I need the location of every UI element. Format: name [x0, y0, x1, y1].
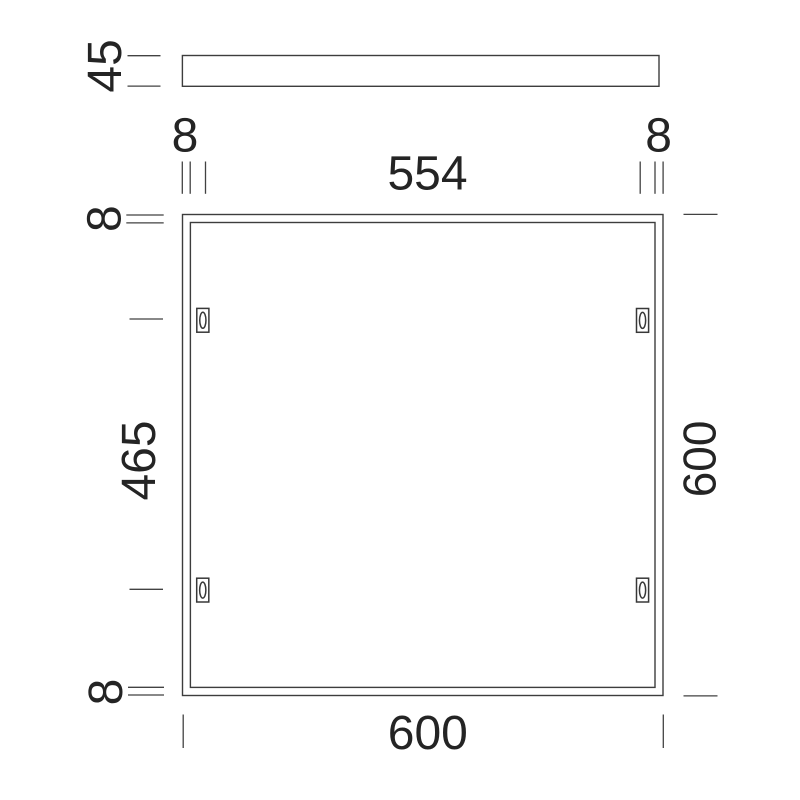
svg-text:45: 45 [79, 39, 132, 92]
svg-text:8: 8 [80, 679, 133, 706]
svg-text:554: 554 [387, 147, 467, 200]
svg-text:465: 465 [113, 420, 166, 500]
svg-text:600: 600 [388, 707, 468, 760]
svg-text:600: 600 [673, 421, 725, 498]
svg-text:8: 8 [78, 205, 131, 232]
svg-text:8: 8 [172, 109, 199, 162]
svg-text:8: 8 [645, 109, 672, 162]
